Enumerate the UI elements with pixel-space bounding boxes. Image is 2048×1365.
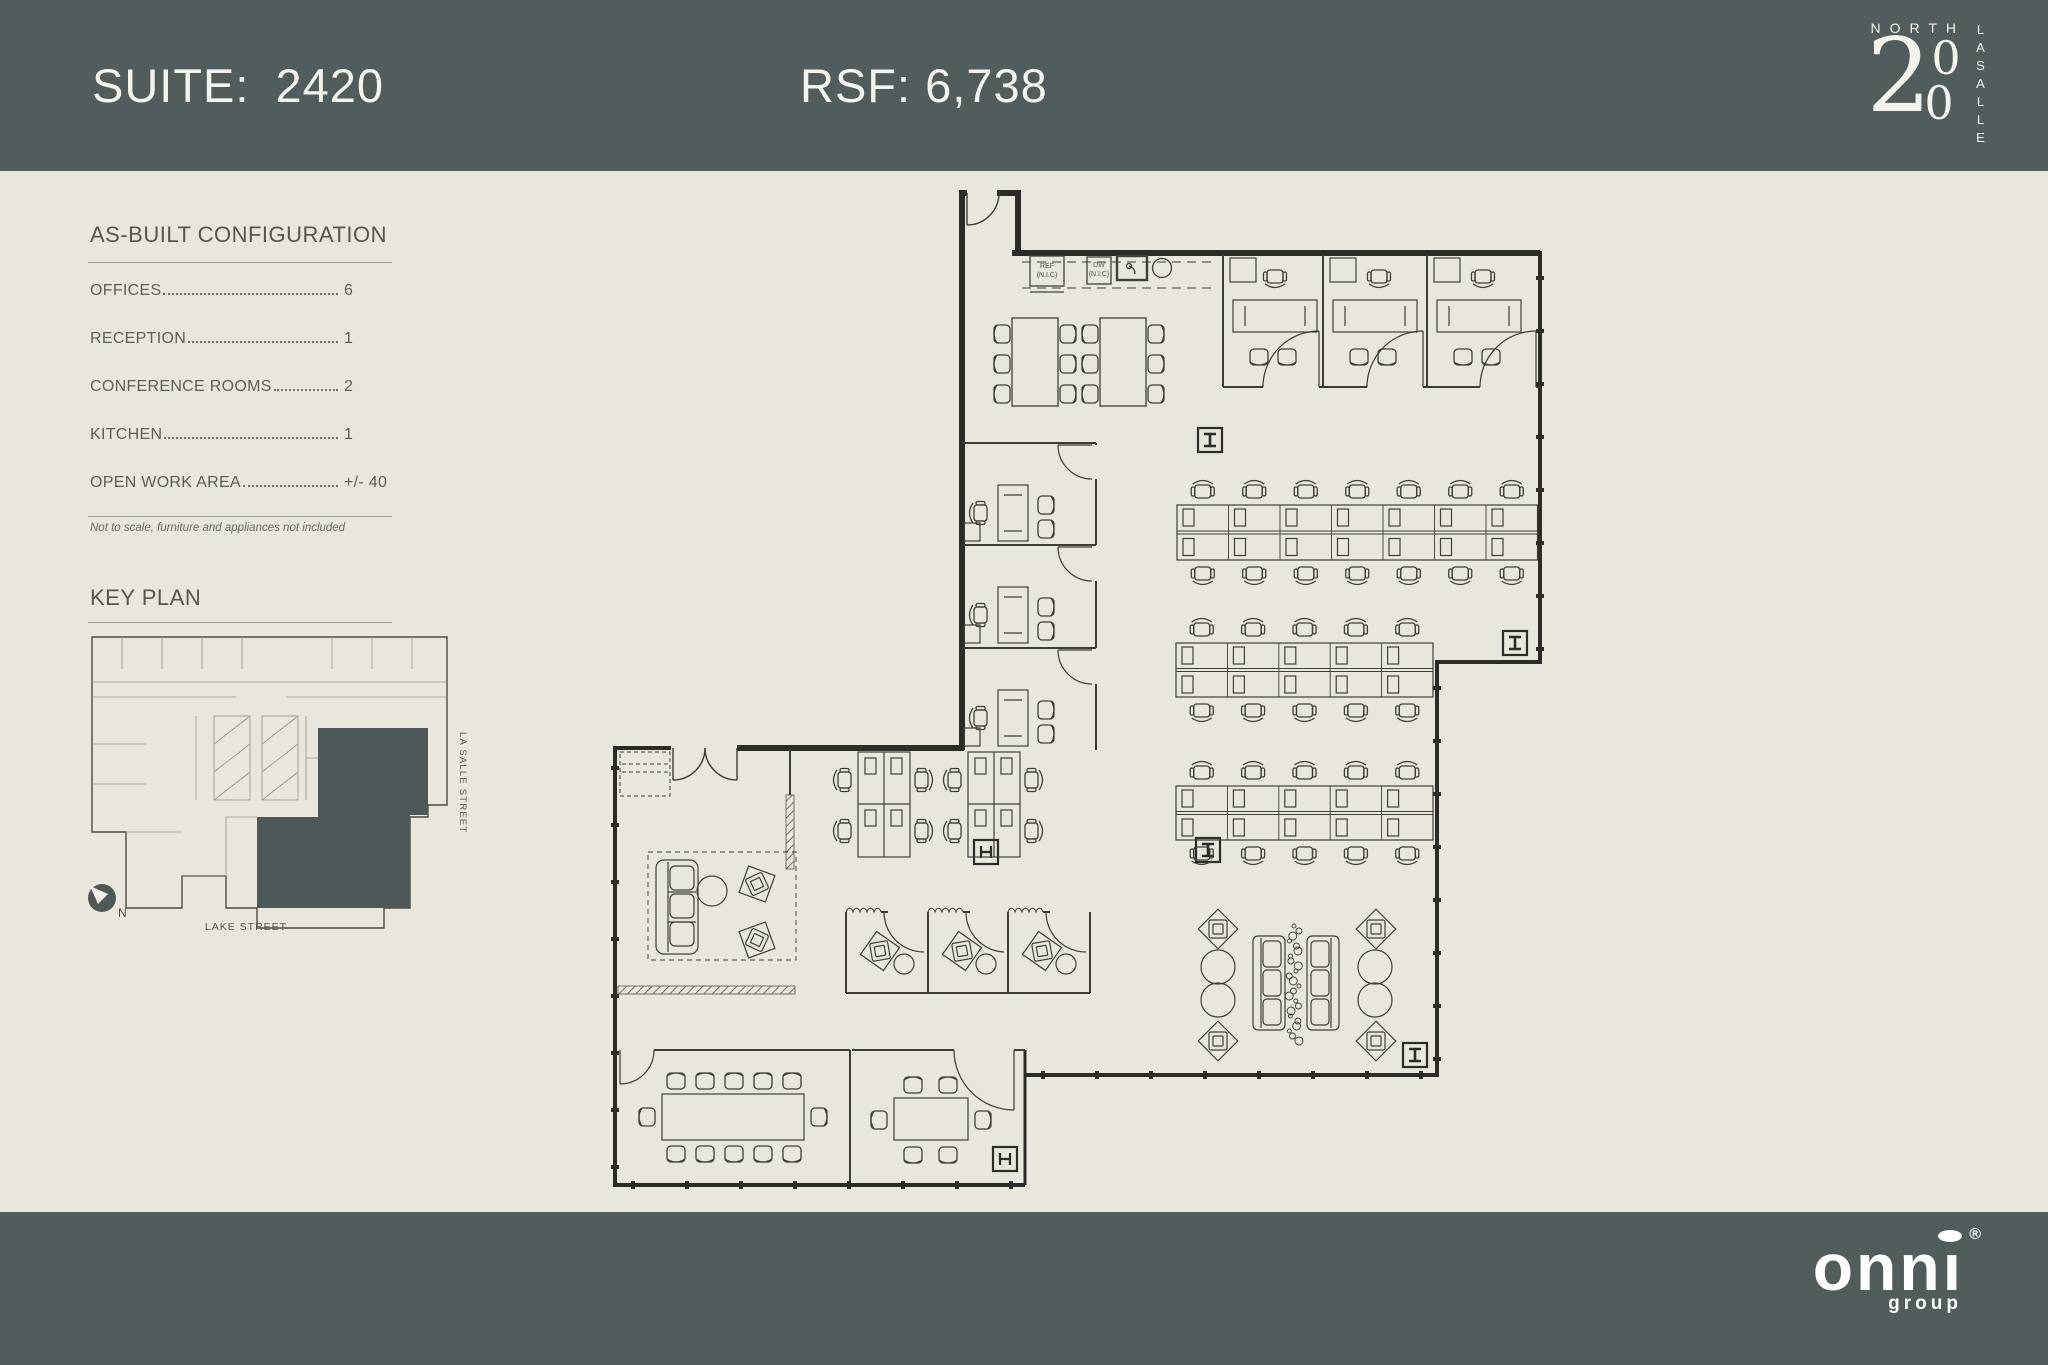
task-chair [944, 820, 962, 843]
desk-detail [1004, 495, 1022, 531]
conference-table [894, 1098, 968, 1140]
monitor-icon [1233, 647, 1244, 664]
reception-double-door [673, 748, 737, 780]
task-chair [1294, 481, 1317, 499]
mullion-tick [793, 1181, 797, 1189]
chair [1060, 385, 1076, 403]
chair [783, 1146, 801, 1162]
task-chair [944, 769, 962, 792]
task-chair [1396, 704, 1419, 722]
ref-label: REF [1040, 263, 1054, 270]
monitor-icon [1233, 676, 1244, 693]
monitor-icon [1001, 810, 1012, 826]
monitor-icon [1285, 647, 1296, 664]
monitor-icon [1388, 790, 1399, 807]
planter-icon [1293, 1022, 1301, 1030]
floor-plan: REF (N.I.C) DW (N.I.C) [0, 0, 2048, 1365]
monitor-icon [1183, 539, 1194, 556]
task-chair [1294, 567, 1317, 585]
monitor-icon [1286, 509, 1297, 526]
mullion-tick [955, 1181, 959, 1189]
monitor-icon [975, 758, 986, 774]
monitor-icon [1233, 790, 1244, 807]
acoustic-panel [846, 908, 881, 912]
desk-detail [1004, 597, 1022, 633]
monitor-icon [1233, 819, 1244, 836]
monitor-icon [891, 810, 902, 826]
planter-icon [1288, 958, 1294, 964]
monitor-icon [865, 758, 876, 774]
planter-icon [1289, 977, 1297, 985]
mullion-tick [685, 1181, 689, 1189]
monitor-icon [865, 810, 876, 826]
desk-detail [1004, 700, 1022, 736]
task-chair [1025, 769, 1043, 792]
chair [939, 1147, 957, 1163]
registered-mark: ® [1969, 1228, 1984, 1242]
chair [754, 1073, 772, 1089]
task-chair [1449, 567, 1472, 585]
chair [1038, 598, 1054, 616]
chair [754, 1146, 772, 1162]
task-chair [970, 707, 988, 730]
office-desk [998, 485, 1028, 541]
chair [1148, 355, 1164, 373]
mullion-tick [611, 994, 619, 998]
monitor-icon [1338, 509, 1349, 526]
task-chair [1025, 820, 1043, 843]
refrigerator-icon [1030, 256, 1064, 286]
mullion-tick [1536, 488, 1544, 492]
planter-icon [1285, 992, 1293, 1000]
office-desk [998, 587, 1028, 643]
chair [1082, 385, 1098, 403]
task-chair [1242, 847, 1265, 865]
planter-icon [1293, 943, 1299, 949]
task-chair [1242, 704, 1265, 722]
i-dot-icon [1938, 1230, 1962, 1242]
column-marker [1403, 1043, 1427, 1067]
onni-text: onnı [1813, 1230, 1964, 1304]
monitor-icon [975, 810, 986, 826]
column-marker [1198, 428, 1222, 452]
task-chair [1449, 481, 1472, 499]
suite-entry-door [967, 193, 999, 225]
mullion-tick [1009, 1181, 1013, 1189]
office-desk [998, 690, 1028, 746]
sofa [1253, 936, 1285, 1030]
mullion-tick [1149, 1071, 1153, 1079]
task-chair [915, 769, 933, 792]
dw-label: DW [1093, 262, 1105, 269]
round-table [1201, 950, 1235, 984]
bench-dividers [1176, 786, 1433, 840]
chair [994, 385, 1010, 403]
task-chair [1344, 704, 1367, 722]
monitor-icon [1001, 758, 1012, 774]
chair [1148, 325, 1164, 343]
task-chair [1190, 762, 1213, 780]
office-cabinet [964, 625, 980, 643]
chair [939, 1077, 957, 1093]
chair [1278, 349, 1296, 365]
chair [1350, 349, 1368, 365]
monitor-icon [1285, 676, 1296, 693]
monitor-icon [1286, 539, 1297, 556]
task-chair [1242, 762, 1265, 780]
chair [811, 1108, 827, 1126]
mullion-tick [1433, 1004, 1441, 1008]
mullion-tick [1365, 1071, 1369, 1079]
chair [667, 1146, 685, 1162]
task-chair [1264, 270, 1287, 288]
dw-label2: (N.I.C) [1089, 271, 1110, 278]
bench-desks [1176, 786, 1433, 840]
task-chair [1396, 619, 1419, 637]
task-chair [1344, 619, 1367, 637]
lounge-chair [1356, 909, 1396, 949]
planter-icon [1295, 1003, 1301, 1009]
mullion-tick [1536, 276, 1544, 280]
chair [994, 355, 1010, 373]
monitor-icon [1336, 819, 1347, 836]
planter-icon [1290, 1033, 1296, 1039]
chair [783, 1073, 801, 1089]
office-cabinet [1434, 258, 1460, 282]
monitor-icon [1338, 539, 1349, 556]
task-chair [1243, 481, 1266, 499]
monitor-icon [1389, 539, 1400, 556]
task-chair [1396, 847, 1419, 865]
chair [1454, 349, 1472, 365]
monitor-icon [1336, 676, 1347, 693]
monitor-icon [1441, 509, 1452, 526]
chair [1482, 349, 1500, 365]
task-chair [1346, 567, 1369, 585]
chair [696, 1073, 714, 1089]
planter-icon [1287, 1029, 1291, 1033]
planter-icon [1286, 973, 1292, 979]
mullion-tick [1536, 382, 1544, 386]
mullion-tick [611, 1108, 619, 1112]
chair [1038, 701, 1054, 719]
mullion-tick [739, 1181, 743, 1189]
mullion-tick [1433, 845, 1441, 849]
monitor-icon [1441, 539, 1452, 556]
planter-icon [1294, 999, 1298, 1003]
task-chair [1500, 481, 1523, 499]
chair [1378, 349, 1396, 365]
perimeter-walls [615, 193, 1540, 1185]
chair [1148, 385, 1164, 403]
mullion-tick [611, 1051, 619, 1055]
south-lounge [1253, 936, 1339, 1030]
lounge-chair [739, 866, 775, 902]
chair [1082, 325, 1098, 343]
task-chair [970, 502, 988, 525]
mullion-tick [1433, 898, 1441, 902]
acoustic-panel [928, 908, 963, 912]
planter-icon [1295, 1037, 1303, 1045]
desk-detail [1345, 306, 1405, 326]
break-tables [1012, 318, 1146, 406]
chair [1060, 355, 1076, 373]
chair [904, 1077, 922, 1093]
desk-detail [1449, 306, 1509, 326]
mullion-tick [611, 1165, 619, 1169]
monitor-icon [1182, 676, 1193, 693]
monitor-icon [1182, 819, 1193, 836]
round-table [1056, 954, 1076, 974]
bench-desks [1176, 643, 1433, 697]
bench-dividers [1176, 643, 1433, 697]
sofa [656, 860, 698, 954]
acoustic-panel [1008, 908, 1043, 912]
monitor-icon [1182, 647, 1193, 664]
monitor-icon [1182, 790, 1193, 807]
monitor-icon [1336, 790, 1347, 807]
round-table [1201, 983, 1235, 1017]
column-marker [1503, 631, 1527, 655]
task-chair [1344, 762, 1367, 780]
mullion-tick [1433, 739, 1441, 743]
task-chair [1191, 481, 1214, 499]
round-table [894, 954, 914, 974]
mullion-tick [1536, 647, 1544, 651]
chair [725, 1073, 743, 1089]
chair [975, 1111, 991, 1129]
planter-icon [1292, 924, 1296, 928]
round-table [976, 954, 996, 974]
desk-detail [1245, 306, 1305, 326]
mullion-tick [1536, 435, 1544, 439]
mullion-tick [1433, 951, 1441, 955]
mullion-tick [611, 766, 619, 770]
task-chair [1293, 847, 1316, 865]
task-chair [1368, 270, 1391, 288]
chair [1038, 725, 1054, 743]
lounge-chair [1356, 1021, 1396, 1061]
kitchen-labels: REF (N.I.C) DW (N.I.C) [1037, 262, 1110, 279]
planter-icon [1296, 928, 1302, 934]
footer-bar [0, 1212, 2048, 1365]
ref-label2: (N.I.C) [1037, 272, 1058, 279]
task-chair [970, 604, 988, 627]
column-marker [993, 1147, 1017, 1171]
lounge-chair [1198, 909, 1238, 949]
mullion-tick [847, 1181, 851, 1189]
mullion-tick [1311, 1071, 1315, 1079]
mullion-tick [1433, 792, 1441, 796]
task-chair [1243, 567, 1266, 585]
monitor-icon [891, 758, 902, 774]
lounge-chair [1198, 1021, 1238, 1061]
monitor-icon [1389, 509, 1400, 526]
mullion-tick [901, 1181, 905, 1189]
mullion-tick [1203, 1071, 1207, 1079]
monitor-icon [1336, 647, 1347, 664]
chair [994, 325, 1010, 343]
task-chair [1191, 567, 1214, 585]
task-chair [1293, 762, 1316, 780]
planter-icon [1297, 984, 1301, 988]
cooktop-icon [1153, 259, 1172, 278]
chair [871, 1111, 887, 1129]
mullion-tick [611, 937, 619, 941]
mullion-tick [1041, 1071, 1045, 1079]
chair [1250, 349, 1268, 365]
planter-icon [1289, 954, 1293, 958]
task-chair [1293, 704, 1316, 722]
chair [696, 1146, 714, 1162]
mullion-tick [611, 880, 619, 884]
monitor-icon [1388, 647, 1399, 664]
mullion-tick [1536, 594, 1544, 598]
mullion-tick [1536, 329, 1544, 333]
planter-icon [1287, 939, 1291, 943]
column-marker [1196, 838, 1220, 862]
chair [1082, 355, 1098, 373]
mullion-tick [1419, 1071, 1423, 1079]
mullion-tick [631, 1181, 635, 1189]
task-chair [1472, 270, 1495, 288]
monitor-icon [1285, 790, 1296, 807]
task-chair [915, 820, 933, 843]
chair [904, 1147, 922, 1163]
mullion-tick [611, 823, 619, 827]
task-chair [834, 769, 852, 792]
mullion-tick [1257, 1071, 1261, 1079]
task-chair [1190, 704, 1213, 722]
task-chair [1344, 847, 1367, 865]
bench-desks [1177, 505, 1538, 560]
monitor-icon [1235, 539, 1246, 556]
chair [1038, 520, 1054, 538]
office-cabinet [1330, 258, 1356, 282]
monitor-icon [1388, 819, 1399, 836]
task-chair [1500, 567, 1523, 585]
chair [1038, 496, 1054, 514]
office-cabinet [1230, 258, 1256, 282]
monitor-icon [1492, 539, 1503, 556]
chair [1060, 325, 1076, 343]
lounge-chair [739, 922, 775, 958]
onni-group-logo: onnı ® group [1813, 1238, 1964, 1315]
chair [1038, 622, 1054, 640]
task-chair [1397, 481, 1420, 499]
mullion-tick [1433, 1057, 1441, 1061]
monitor-icon [1235, 509, 1246, 526]
chair [639, 1108, 655, 1126]
task-chair [1190, 619, 1213, 637]
monitor-icon [1492, 509, 1503, 526]
monitor-icon [1285, 819, 1296, 836]
vestibule [620, 752, 670, 796]
chair [667, 1073, 685, 1089]
conference-table [662, 1094, 804, 1140]
round-table [1358, 983, 1392, 1017]
monitor-icon [1183, 509, 1194, 526]
task-chair [1346, 481, 1369, 499]
mullion-tick [1095, 1071, 1099, 1079]
round-table [1358, 950, 1392, 984]
task-chair [1397, 567, 1420, 585]
bench-dividers [1177, 505, 1538, 560]
mullion-tick [1536, 541, 1544, 545]
task-chair [1242, 619, 1265, 637]
office-cabinet [964, 523, 980, 541]
monitor-icon [1388, 676, 1399, 693]
task-chair [1293, 619, 1316, 637]
floorplan-sheet: { "header": { "suite_label": "SUITE:", "… [0, 0, 2048, 1365]
task-chair [1396, 762, 1419, 780]
sofa [1307, 936, 1339, 1030]
task-chair [834, 820, 852, 843]
coffee-table [697, 876, 727, 906]
office-cabinet [964, 728, 980, 746]
chair [725, 1146, 743, 1162]
mullion-tick [1433, 686, 1441, 690]
onni-wordmark: onnı ® [1813, 1238, 1964, 1297]
